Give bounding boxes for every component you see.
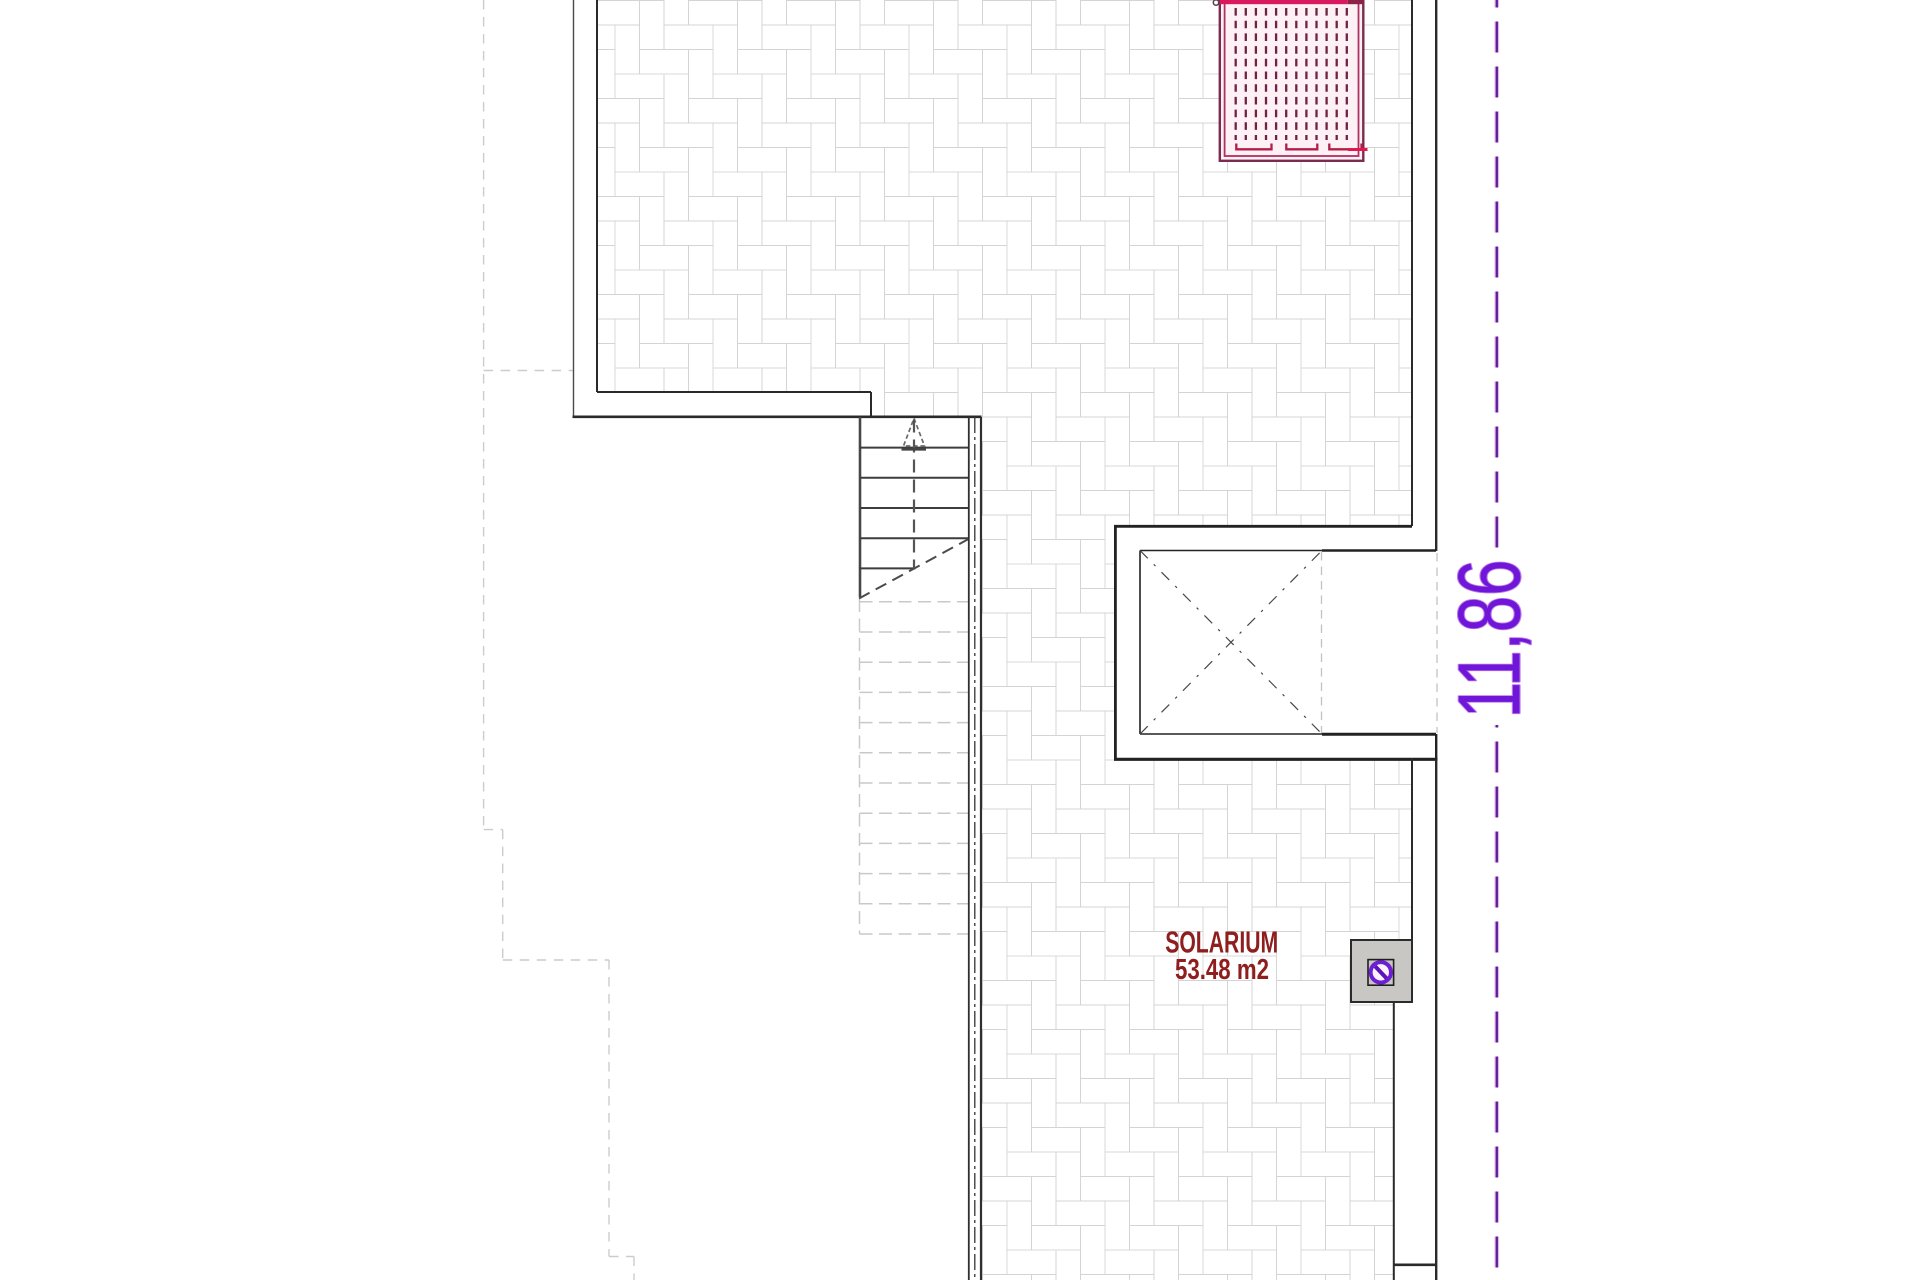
svg-text:11,86: 11,86 xyxy=(1440,560,1539,719)
svg-text:53.48 m2: 53.48 m2 xyxy=(1175,954,1269,986)
